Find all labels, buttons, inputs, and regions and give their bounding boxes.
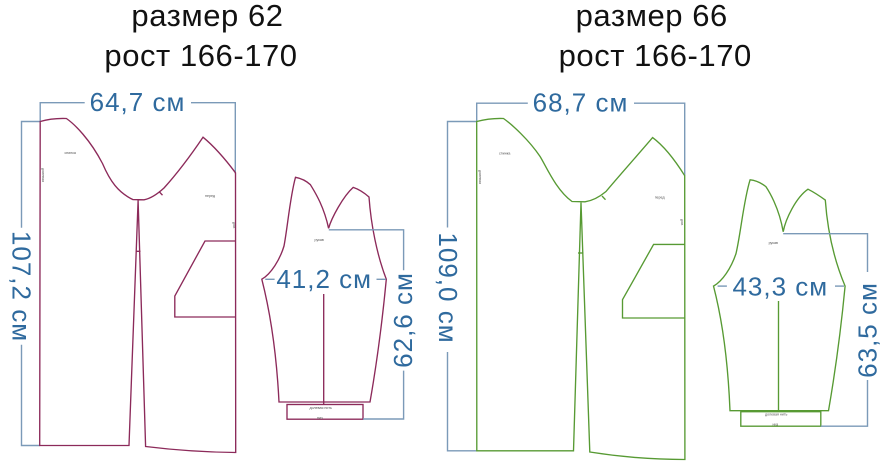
svg-text:перед: перед <box>655 196 666 200</box>
svg-text:43,3 см: 43,3 см <box>732 272 828 302</box>
svg-text:долевая нить: долевая нить <box>765 413 788 417</box>
svg-text:низ: низ <box>773 423 779 427</box>
svg-text:68,7 см: 68,7 см <box>533 88 629 118</box>
svg-text:размер 66: размер 66 <box>576 0 728 33</box>
svg-text:рукав: рукав <box>315 238 324 242</box>
svg-text:рост 166-170: рост 166-170 <box>559 38 752 73</box>
svg-text:109,0 см: 109,0 см <box>433 232 463 343</box>
svg-text:64,7 см: 64,7 см <box>90 87 186 117</box>
svg-text:спинка: спинка <box>499 152 510 156</box>
svg-text:долевая: долевая <box>478 170 482 184</box>
svg-text:перед: перед <box>205 194 216 198</box>
svg-text:107,2 см: 107,2 см <box>7 231 37 342</box>
svg-text:долевая: долевая <box>41 168 45 182</box>
svg-text:рост 166-170: рост 166-170 <box>104 38 297 73</box>
svg-text:63,5 см: 63,5 см <box>853 282 883 378</box>
svg-text:41,2 см: 41,2 см <box>276 264 372 294</box>
svg-text:62,6 см: 62,6 см <box>388 272 418 368</box>
svg-text:рукав: рукав <box>769 241 778 245</box>
svg-text:размер 62: размер 62 <box>131 0 283 33</box>
svg-text:спинка: спинка <box>65 151 76 155</box>
svg-text:дол.: дол. <box>232 222 236 229</box>
svg-text:долевая нить: долевая нить <box>310 406 333 410</box>
svg-text:дол.: дол. <box>680 219 684 226</box>
svg-text:низ: низ <box>317 416 323 420</box>
